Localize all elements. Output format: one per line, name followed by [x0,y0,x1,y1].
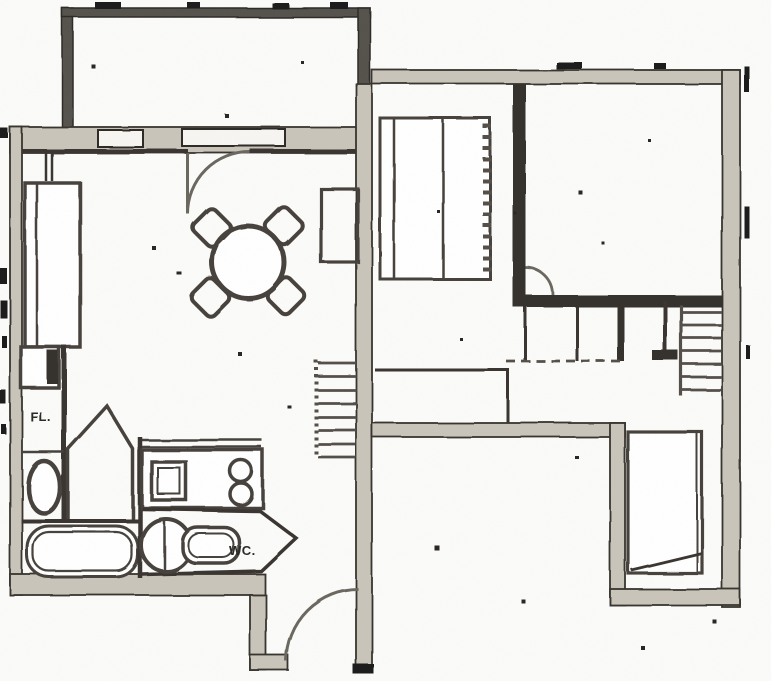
floor-plan-drawing: FL. WC. [0,0,771,681]
floor-plan-page: FL. WC. [0,0,771,681]
paper-grain-overlay [0,0,771,681]
